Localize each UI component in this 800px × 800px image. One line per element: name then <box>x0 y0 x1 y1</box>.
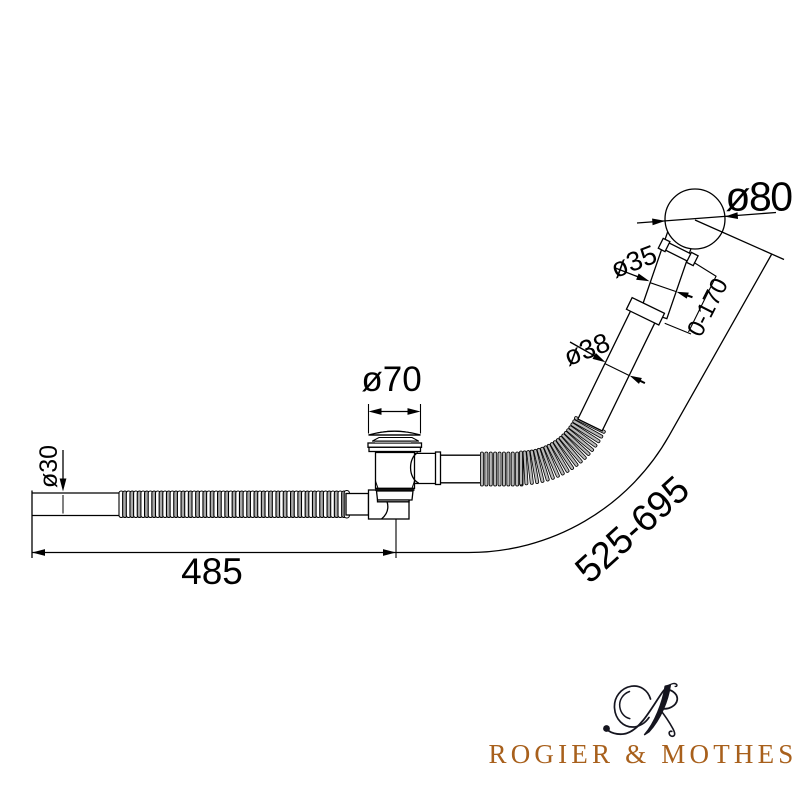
svg-text:ø80: ø80 <box>725 174 792 220</box>
svg-text:485: 485 <box>181 551 243 592</box>
svg-text:ø30: ø30 <box>35 445 63 488</box>
svg-text:ROGIER & MOTHES: ROGIER & MOTHES <box>488 739 797 769</box>
svg-text:ø70: ø70 <box>361 360 421 399</box>
